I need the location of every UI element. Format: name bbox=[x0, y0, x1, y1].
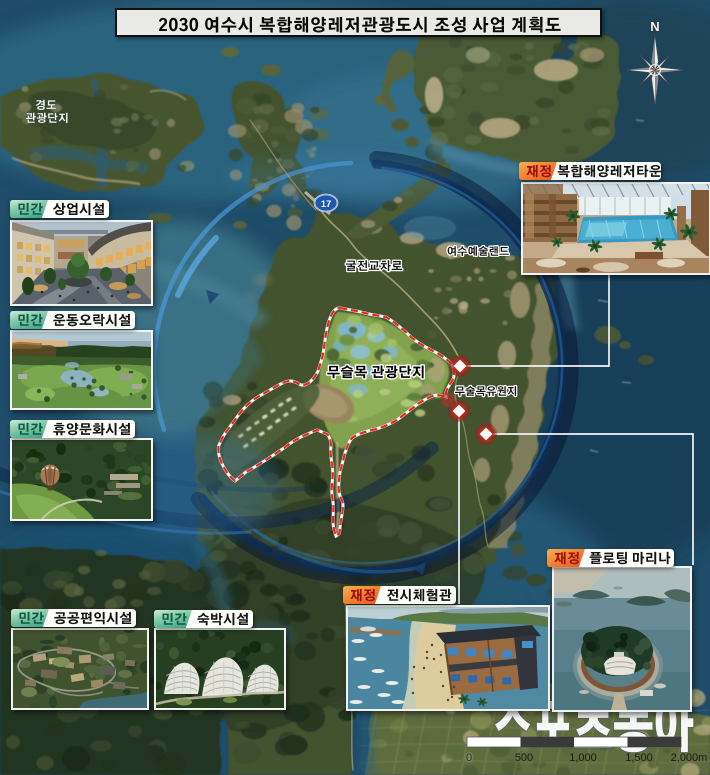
svg-text:N: N bbox=[650, 19, 659, 34]
svg-text:2,000m: 2,000m bbox=[671, 752, 708, 764]
svg-text:0: 0 bbox=[466, 752, 472, 764]
svg-text:500: 500 bbox=[515, 752, 533, 764]
svg-text:1,000: 1,000 bbox=[569, 752, 597, 764]
svg-text:1,500: 1,500 bbox=[625, 752, 653, 764]
svg-text:17: 17 bbox=[321, 199, 332, 210]
